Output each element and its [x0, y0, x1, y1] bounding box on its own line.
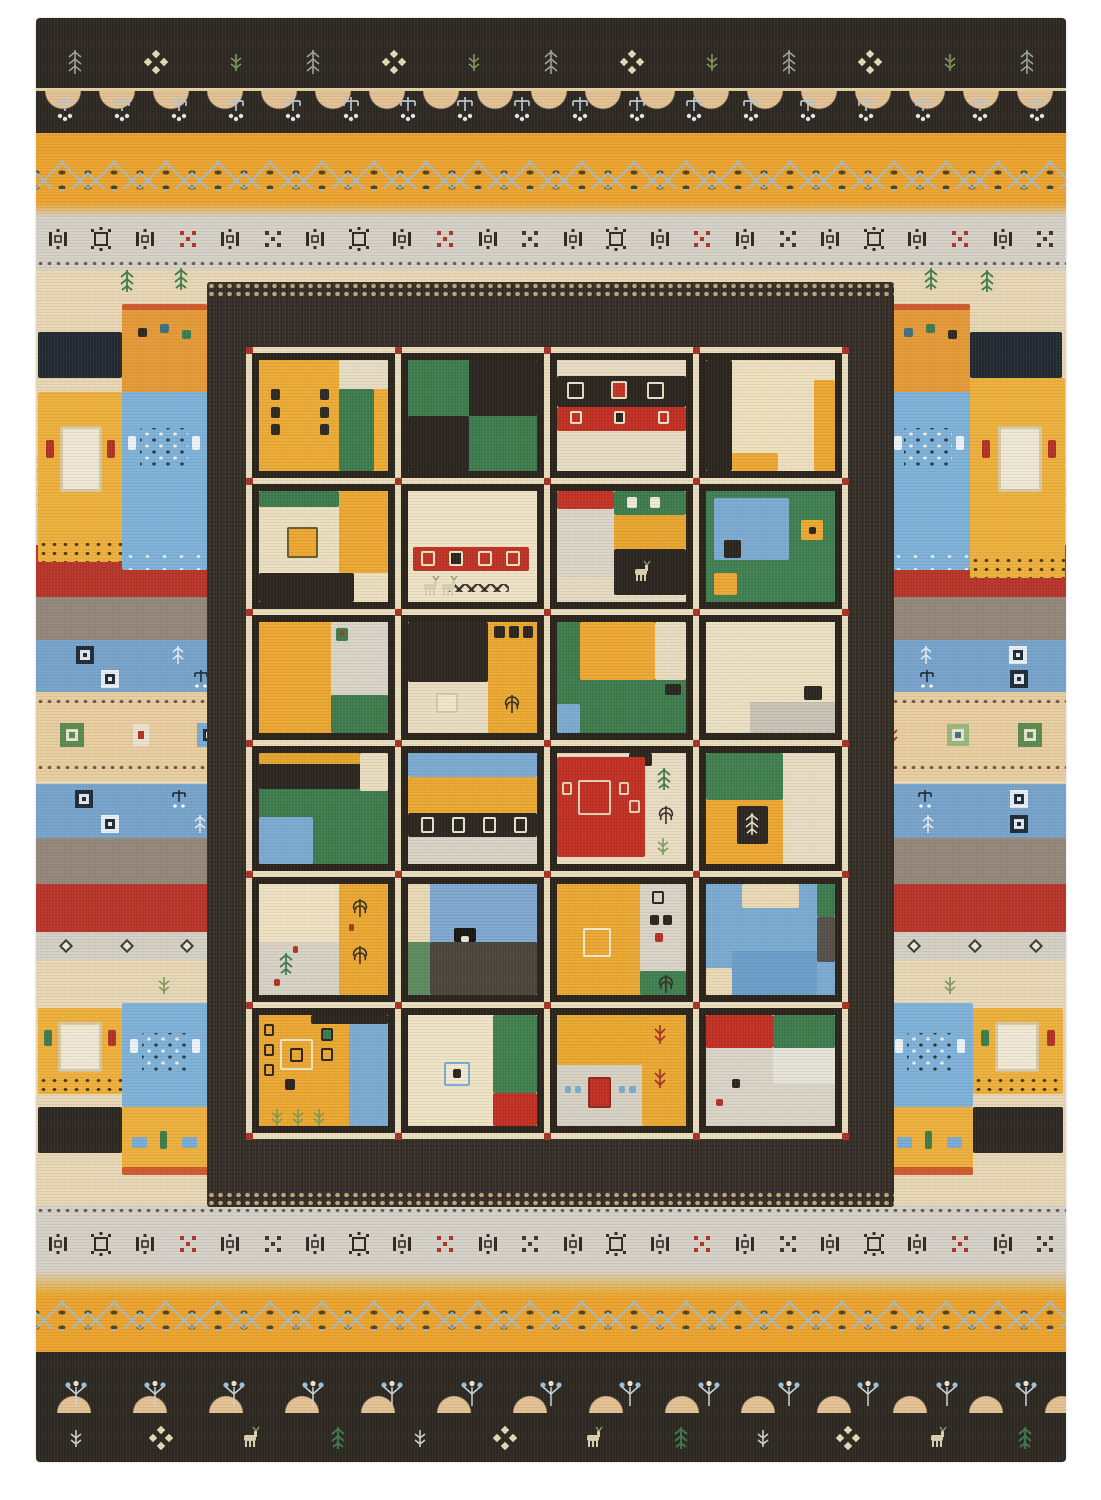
patch-detail [160, 324, 169, 333]
cell-patch [449, 551, 463, 567]
gate-icon [733, 1231, 757, 1257]
band-dots-to-dark [36, 1352, 1066, 1365]
xred-icon [434, 228, 456, 250]
cell-patch [271, 407, 280, 418]
band-yellow-band-bottom [36, 1295, 1066, 1352]
xred-icon [949, 228, 971, 250]
patch-detail [904, 328, 913, 337]
treeG-icon [329, 1425, 347, 1451]
cell-patch [421, 817, 434, 833]
cell-patch [637, 431, 663, 471]
motif-row [36, 1227, 1066, 1261]
anchorS-icon [170, 788, 188, 810]
xred-icon [177, 228, 199, 250]
cell-inner [557, 753, 686, 864]
sqtick-icon [347, 226, 371, 252]
cell-r6c2 [401, 1008, 544, 1133]
band-orange-band [36, 153, 1066, 203]
cell-patch [320, 424, 329, 435]
diamond-icon [117, 936, 137, 956]
anchor-icon [454, 94, 476, 122]
patch-detail [948, 330, 957, 339]
patch-detail [140, 428, 188, 468]
xred-icon [434, 1233, 456, 1255]
motif-row [36, 1375, 1066, 1413]
gate-icon [905, 226, 929, 252]
patch-detail [142, 1033, 188, 1071]
chipG-icon [59, 722, 85, 748]
cell-inner [259, 884, 388, 995]
treeG-icon [672, 1425, 690, 1451]
diamond-icon [1026, 936, 1046, 956]
sqtick-icon [604, 226, 628, 252]
cell-patch [575, 1086, 581, 1093]
chipW-icon [132, 723, 150, 747]
cell-patch [436, 693, 458, 713]
cell-patch [509, 626, 519, 637]
gate-icon [133, 1231, 157, 1257]
motif-row [36, 1301, 1066, 1331]
cell-patch [523, 626, 533, 637]
anchor-icon [282, 94, 304, 122]
xdark-icon [519, 1233, 541, 1255]
cell-patch [706, 968, 732, 995]
gate-icon [733, 226, 757, 252]
cell-patch [311, 1015, 388, 1024]
gate-icon [218, 226, 242, 252]
patch-detail [192, 436, 200, 450]
cell-r5c2 [401, 877, 544, 1002]
cell-patch [773, 1048, 835, 1084]
cell-patch [259, 764, 360, 788]
flower-icon [934, 1379, 960, 1409]
cell-patch [259, 491, 339, 507]
flower-icon [63, 1379, 89, 1409]
cell-patch [259, 942, 339, 995]
cell-r3c2 [401, 615, 544, 740]
cell-inner [706, 622, 835, 733]
cell-patch [320, 407, 329, 418]
xred-icon [691, 1233, 713, 1255]
sqtick-icon [347, 1231, 371, 1257]
motif-row [36, 1419, 1066, 1457]
cell-r6c1 [252, 1008, 395, 1133]
anchor-icon [569, 94, 591, 122]
anchorS-icon [916, 788, 934, 810]
side-patch-tl-yellow [38, 392, 122, 562]
cell-patch [360, 753, 388, 791]
cell-patch [461, 936, 469, 942]
cell-inner [408, 622, 537, 733]
cell-inner [706, 360, 835, 471]
xred-icon [177, 1233, 199, 1255]
diamonds4-icon [620, 50, 644, 74]
cell-patch [611, 381, 626, 399]
sqin-icon [73, 788, 95, 810]
patch-detail [1048, 440, 1056, 458]
cell-patch [493, 1015, 537, 1093]
patch-detail [122, 550, 207, 570]
grid-knot [842, 1133, 849, 1140]
cell-patch [493, 1093, 537, 1126]
patch-detail [957, 1039, 965, 1053]
xdark-icon [777, 228, 799, 250]
cell-patch [652, 891, 664, 904]
sproutW-icon [412, 1427, 428, 1449]
cell-inner [706, 491, 835, 602]
flower-icon [379, 1379, 405, 1409]
sqtick-icon [89, 1231, 113, 1257]
cell-patch [732, 453, 778, 471]
patch-detail [907, 1033, 953, 1071]
patch-detail [46, 440, 54, 458]
cell-patch [557, 491, 614, 509]
grid-knot [842, 347, 849, 354]
cell-patch [271, 424, 280, 435]
patch-detail [973, 1076, 1063, 1094]
sqtick-icon [89, 226, 113, 252]
cell-patch [562, 782, 572, 795]
diamonds4-icon [493, 1426, 517, 1450]
tree-icon [542, 48, 560, 76]
side-patch-br-dark [973, 1107, 1063, 1153]
patch-detail [947, 1137, 962, 1148]
gate-icon [303, 1231, 327, 1257]
patch-detail [122, 1167, 208, 1175]
cell-inner [557, 622, 686, 733]
photo-background: { "meta": { "description": "Photograph o… [0, 0, 1101, 1500]
cell-r1c4 [699, 353, 842, 478]
side-patch-tr-blue [890, 392, 970, 570]
motif-row [36, 88, 1066, 124]
willow-icon [501, 691, 523, 715]
cell-patch [650, 497, 660, 508]
side-patch-bl-yellow-strip [122, 1107, 208, 1175]
anchor-icon [168, 94, 190, 122]
anchor-icon [54, 94, 76, 122]
tree-icon [304, 48, 322, 76]
flower-icon [459, 1379, 485, 1409]
cell-r4c3 [550, 746, 693, 871]
tree-icon [66, 48, 84, 76]
band-orange-fade [36, 203, 1066, 217]
sqinW-icon [1008, 645, 1028, 665]
cell-r1c2 [401, 353, 544, 478]
band-gray-to-yellow [36, 1270, 1066, 1295]
cell-r2c3 [550, 484, 693, 609]
xdark-icon [262, 1233, 284, 1255]
cell-patch [742, 884, 799, 908]
cell-patch [430, 942, 537, 995]
anchor-icon [511, 94, 533, 122]
anchor-icon [111, 94, 133, 122]
cell-patch [259, 817, 313, 864]
gate-icon [46, 1231, 70, 1257]
cell-patch [478, 551, 492, 567]
xdark-icon [519, 228, 541, 250]
tree-icon [1018, 48, 1036, 76]
cell-patch [514, 817, 527, 833]
treeG-icon [118, 268, 136, 294]
gate-icon [561, 1231, 585, 1257]
diamond-icon [965, 936, 985, 956]
cell-patch [494, 626, 504, 637]
cell-patch [321, 1028, 333, 1040]
cell-inner [408, 753, 537, 864]
patch-detail [60, 426, 102, 492]
cell-patch [570, 411, 582, 424]
cell-patch [483, 817, 496, 833]
treeC-icon [742, 811, 762, 837]
cell-patch [408, 942, 430, 995]
xred-icon [691, 228, 713, 250]
cell-patch [565, 1086, 571, 1093]
treeG-icon [1016, 1425, 1034, 1451]
band-gray-band [36, 217, 1066, 270]
flower-icon [776, 1379, 802, 1409]
cell-patch [287, 527, 318, 558]
flower-icon [855, 1379, 881, 1409]
patch-detail [182, 330, 191, 339]
cell-patch [421, 551, 435, 567]
cell-patch [349, 1024, 388, 1126]
sprout-icon [466, 51, 482, 73]
diamonds4-icon [858, 50, 882, 74]
plantR-icon [652, 1022, 668, 1046]
willow-icon [349, 942, 371, 966]
grid-knot [842, 1002, 849, 1009]
cell-inner [259, 1015, 388, 1126]
flower-icon [221, 1379, 247, 1409]
panel-bottom-dotted-edge [207, 1191, 894, 1207]
sqinW-icon [1009, 789, 1029, 809]
cell-patch [583, 928, 611, 957]
xdark-icon [1034, 1233, 1056, 1255]
anchorS-icon [918, 668, 936, 690]
cell-patch [750, 702, 835, 733]
cell-patch [567, 382, 584, 399]
gate-icon [476, 226, 500, 252]
motif-row [36, 1207, 1066, 1215]
diamond-icon [56, 936, 76, 956]
cell-patch [285, 1079, 295, 1090]
cell-patch [732, 1079, 740, 1088]
patch-detail [956, 436, 964, 450]
cell-patch [714, 573, 737, 595]
flower-icon [142, 1379, 168, 1409]
patch-detail [894, 436, 902, 450]
cell-inner [557, 1015, 686, 1126]
gate-icon [46, 226, 70, 252]
treeW-icon [919, 644, 933, 666]
gate-icon [818, 226, 842, 252]
anchor-icon [969, 94, 991, 122]
cell-patch [814, 380, 835, 471]
sqtick-icon [862, 1231, 886, 1257]
cell-patch [578, 780, 612, 816]
motif-row [36, 223, 1066, 255]
cell-patch [706, 1015, 773, 1048]
patch-detail [982, 440, 990, 458]
tree-icon [780, 48, 798, 76]
sprout-icon [655, 835, 671, 857]
cell-patch [650, 915, 659, 925]
flower-icon [696, 1379, 722, 1409]
patch-detail [182, 1137, 197, 1148]
side-patch-tl-navy [38, 332, 122, 378]
band-gray-bottom [36, 1205, 1066, 1270]
patch-detail [925, 1131, 932, 1149]
cell-r5c1 [252, 877, 395, 1002]
anchor-icon [740, 94, 762, 122]
sprout-icon [269, 1106, 285, 1126]
patch-detail [998, 426, 1042, 492]
cell-patch [619, 782, 629, 795]
cell-patch [453, 1069, 461, 1078]
cell-patch [655, 933, 663, 942]
cell-inner [706, 1015, 835, 1126]
deerG-icon [436, 575, 462, 599]
diamonds4-icon [149, 1426, 173, 1450]
cell-r3c3 [550, 615, 693, 740]
side-patch-bl-blue [122, 1003, 208, 1107]
cell-r6c3 [550, 1008, 693, 1133]
side-patch-tr-orange-b [970, 378, 1065, 578]
side-patch-br-yellow-strip [887, 1107, 973, 1175]
cell-patch [264, 1024, 274, 1036]
cell-r6c4 [699, 1008, 842, 1133]
willow-icon [655, 802, 677, 826]
deerG-icon [581, 1426, 607, 1450]
cell-inner [408, 360, 537, 471]
cell-r2c4 [699, 484, 842, 609]
cell-patch [557, 509, 614, 578]
xdark-icon [777, 1233, 799, 1255]
cell-inner [557, 491, 686, 602]
sqin-icon [1008, 668, 1030, 690]
cell-patch [629, 1086, 635, 1093]
patch-detail [970, 556, 1065, 578]
rug-photo [36, 18, 1066, 1462]
cell-patch [408, 884, 430, 942]
side-patch-bl-dark [38, 1107, 122, 1153]
grid-knot [842, 478, 849, 485]
band-bottom-border [36, 1365, 1066, 1462]
cell-patch [804, 686, 822, 699]
sprout-icon [942, 51, 958, 73]
cell-patch [321, 1048, 333, 1060]
xdark-icon [262, 228, 284, 250]
patch-detail [904, 428, 952, 468]
cell-patch [331, 695, 388, 733]
cell-patch [706, 753, 783, 800]
cell-r3c4 [699, 615, 842, 740]
cell-r1c3 [550, 353, 693, 478]
anchor-icon [912, 94, 934, 122]
treeW-icon [921, 813, 935, 835]
cell-patch [259, 573, 354, 602]
cell-patch [663, 915, 672, 925]
cell-patch [339, 491, 388, 573]
cell-patch [557, 1015, 642, 1065]
sqinW-icon [100, 814, 120, 834]
gate-icon [303, 226, 327, 252]
treeW-icon [171, 644, 185, 666]
flower-icon [538, 1379, 564, 1409]
side-patch-br-yellow [973, 1008, 1063, 1094]
motif-row [36, 161, 1066, 191]
cell-patch [629, 800, 639, 813]
treeW-icon [193, 813, 207, 835]
xred-icon [949, 1233, 971, 1255]
gate-icon [818, 1231, 842, 1257]
cell-patch [469, 360, 537, 416]
cell-patch [706, 360, 732, 471]
cell-inner [408, 491, 537, 602]
grid-knot [246, 1133, 253, 1140]
anchor-icon [225, 94, 247, 122]
diamonds4-icon [382, 50, 406, 74]
cell-inner [706, 884, 835, 995]
plantR-icon [652, 1066, 668, 1090]
willow-icon [655, 971, 677, 995]
cell-patch [724, 540, 741, 558]
motif-row [36, 260, 1066, 266]
cell-inner [408, 1015, 537, 1126]
treeG-icon [172, 266, 190, 292]
patch-detail [58, 1022, 102, 1072]
grid-knot [842, 871, 849, 878]
cell-r4c2 [401, 746, 544, 871]
cell-patch [658, 411, 670, 424]
sqin-icon [1008, 813, 1030, 835]
cell-patch [408, 753, 537, 777]
diamonds4-icon [144, 50, 168, 74]
cell-r5c4 [699, 877, 842, 1002]
cell-patch [588, 1077, 611, 1108]
gate-icon [991, 1231, 1015, 1257]
sprout-icon [311, 1106, 327, 1126]
cell-r2c2 [401, 484, 544, 609]
cell-patch [264, 1064, 274, 1076]
patch-detail [1047, 1030, 1055, 1046]
grid-knot [544, 1133, 551, 1140]
patch-detail [995, 1022, 1039, 1072]
chipGr-icon [946, 723, 970, 747]
gate-icon [390, 1231, 414, 1257]
patch-detail [38, 540, 122, 562]
cell-patch [614, 411, 626, 424]
cell-patch [349, 924, 354, 931]
patch-detail [897, 1137, 912, 1148]
flower-icon [300, 1379, 326, 1409]
diamonds4-icon [836, 1426, 860, 1450]
sprout-icon [942, 974, 958, 996]
cell-patch [452, 817, 465, 833]
willow-icon [349, 895, 371, 919]
sproutW-icon [755, 1427, 771, 1449]
cell-patch [320, 389, 329, 400]
cell-patch [290, 1048, 303, 1061]
diamond-icon [904, 936, 924, 956]
cell-inner [259, 360, 388, 471]
anchor-icon [397, 94, 419, 122]
cell-r3c1 [252, 615, 395, 740]
flower-icon [617, 1379, 643, 1409]
patch-detail [890, 550, 970, 570]
cell-patch [339, 389, 374, 471]
patch-detail [130, 1039, 138, 1053]
